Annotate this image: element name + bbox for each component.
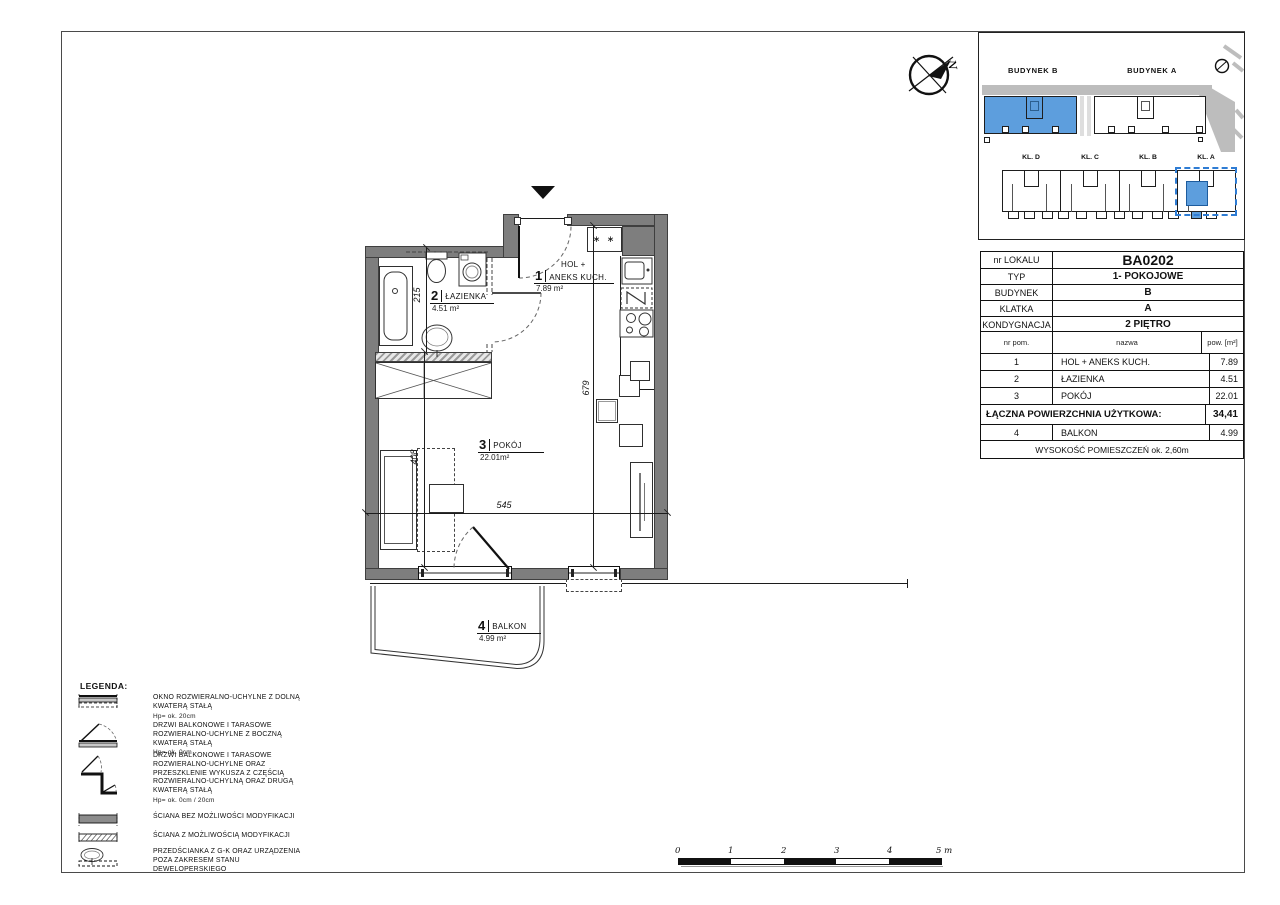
room-number: 1: [534, 270, 546, 282]
legend-note: Hp= ok. 20cm: [153, 713, 311, 721]
strip-unit-line: [1105, 184, 1106, 212]
site-detail: [1128, 126, 1135, 133]
stair-label-klc: KL. C: [1072, 154, 1108, 161]
window-symbol-icon: [78, 694, 118, 712]
legend-item-balcony-door: DRZWI BALKONOWE I TARASOWE ROZWIERALNO-U…: [78, 722, 313, 750]
room-number: 2: [430, 290, 442, 302]
fixed-wall-symbol-icon: [78, 813, 118, 826]
strip-unit-line: [1129, 184, 1130, 212]
room-row-name: ŁAZIENKA: [1053, 371, 1210, 387]
site-detail: [1108, 126, 1115, 133]
strip-divider: [1060, 170, 1061, 212]
unit-info-label: TYP: [981, 269, 1053, 284]
scale-tick-label: 1: [728, 846, 733, 856]
gk-partition-symbol-icon: [78, 848, 118, 868]
scale-segment: [679, 859, 731, 864]
room-area: 4.51 m²: [430, 304, 494, 313]
strip-unit-line: [1012, 184, 1013, 212]
room-area-table: nr pom. nazwa pow. [m²] 1 HOL + ANEKS KU…: [980, 331, 1244, 459]
strip-balcony: [1076, 211, 1087, 219]
room-label-pokoj: 3 POKÓJ 22.01m²: [478, 439, 544, 462]
strip-balcony: [1042, 211, 1053, 219]
floor-value: 2 PIĘTRO: [1053, 317, 1243, 332]
scale-segment: [889, 859, 941, 864]
site-detail: [1162, 126, 1169, 133]
legend-text: OKNO ROZWIERALNO-UCHYLNE Z DOLNĄ KWATERĄ…: [153, 694, 300, 710]
site-path: [1080, 96, 1084, 136]
dimension-line: [424, 352, 425, 568]
site-detail: [1022, 126, 1029, 133]
room-row-area: 7.89: [1210, 354, 1243, 370]
room-row-name: POKÓJ: [1053, 388, 1210, 404]
strip-balcony: [1058, 211, 1069, 219]
room-name: BALKON: [489, 623, 526, 631]
scale-tick-label: 2: [781, 846, 786, 856]
unit-info-label: nr LOKALU: [981, 252, 1053, 268]
balcony-door-symbol-icon: [78, 722, 118, 750]
strip-unit-line: [1163, 184, 1164, 212]
legend-text: PRZEDŚCIANKA Z G-K ORAZ URZĄDZENIA POZA …: [153, 848, 300, 873]
staircase-value: A: [1053, 301, 1243, 316]
legend-text: DRZWI BALKONOWE I TARASOWE ROZWIERALNO-U…: [153, 722, 282, 747]
unit-number-value: BA0202: [1053, 252, 1243, 268]
stair-a-highlight: [1175, 167, 1237, 216]
site-path: [1087, 96, 1091, 136]
unit-info-label: BUDYNEK: [981, 285, 1053, 300]
room-name: ANEKS KUCH.: [546, 274, 607, 282]
legend-item-modifiable-wall: ŚCIANA Z MOŻLIWOŚCIĄ MODYFIKACJI: [78, 832, 313, 844]
north-compass-icon: N: [909, 56, 959, 94]
strip-stair: [1141, 170, 1156, 187]
strip-divider: [1119, 170, 1120, 212]
scale-tick-label: 3: [834, 846, 839, 856]
scale-bar: [678, 858, 942, 865]
legend-item-window: OKNO ROZWIERALNO-UCHYLNE Z DOLNĄ KWATERĄ…: [78, 694, 313, 712]
room-row-num: 3: [981, 388, 1053, 404]
scale-segment: [784, 859, 836, 864]
column-header: pow. [m²]: [1202, 332, 1243, 353]
hob: [620, 310, 653, 337]
sheet: ∗ ∗: [0, 0, 1280, 905]
unit-info-table: nr LOKALU BA0202 TYP 1- POKOJOWE BUDYNEK…: [980, 251, 1244, 333]
site-detail: [1196, 126, 1203, 133]
room-label-lazienka: 2 ŁAZIENKA 4.51 m²: [430, 290, 494, 313]
bay-door-symbol-icon: [78, 752, 118, 798]
legend-text: DRZWI BALKONOWE I TARASOWE ROZWIERALNO-U…: [153, 752, 293, 794]
room-number: 3: [478, 439, 490, 451]
bathtub-basin: [384, 272, 407, 340]
strip-stair: [1083, 170, 1098, 187]
modifiable-wall-symbol-icon: [78, 832, 118, 844]
room-row-num: 4: [981, 425, 1053, 440]
site-detail: [984, 137, 990, 143]
site-building-b-stair-core: [1030, 101, 1039, 111]
room-row-area: 22.01: [1210, 388, 1243, 404]
column-header: nr pom.: [981, 332, 1053, 353]
legend-item-fixed-wall: ŚCIANA BEZ MOŻLIWOŚCI MODYFIKACJI: [78, 813, 313, 826]
room-label-balkon: 4 BALKON 4.99 m²: [477, 620, 541, 643]
strip-balcony: [1132, 211, 1143, 219]
building-value: B: [1053, 285, 1243, 300]
site-detail: [1052, 126, 1059, 133]
legend-text: ŚCIANA Z MOŻLIWOŚCIĄ MODYFIKACJI: [153, 832, 290, 839]
room-row-num: 1: [981, 354, 1053, 370]
legend-title: LEGENDA:: [80, 681, 128, 691]
svg-text:N: N: [945, 58, 960, 71]
kitchen-sink: [622, 258, 652, 284]
dimension-line: [426, 248, 427, 352]
legend-note: Hp= ok. 0cm / 20cm: [153, 797, 311, 805]
column-header: nazwa: [1053, 332, 1202, 353]
stair-label-klb: KL. B: [1130, 154, 1166, 161]
building-a-label: BUDYNEK A: [1106, 66, 1198, 75]
legend-item-bay-door: DRZWI BALKONOWE I TARASOWE ROZWIERALNO-U…: [78, 752, 313, 798]
dimension-label-215: 215: [412, 284, 422, 306]
scale-segment: [836, 859, 888, 864]
room-area: 22.01m²: [478, 453, 544, 462]
site-detail: [1198, 137, 1203, 142]
room-row-area: 4.51: [1210, 371, 1243, 387]
room-name: POKÓJ: [490, 442, 522, 450]
unit-info-label: KLATKA: [981, 301, 1053, 316]
dimension-label-679: 679: [581, 377, 591, 399]
strip-unit-line: [1046, 184, 1047, 212]
balcony-door: [454, 527, 509, 569]
legend-text: ŚCIANA BEZ MOŻLIWOŚCI MODYFIKACJI: [153, 813, 295, 820]
scale-end-label: 5 m: [936, 846, 952, 856]
strip-stair: [1024, 170, 1039, 187]
strip-balcony: [1152, 211, 1163, 219]
room-area: 4.99 m²: [477, 634, 541, 643]
scale-bar-shadow: [681, 866, 943, 867]
unit-type-value: 1- POKOJOWE: [1053, 269, 1243, 284]
unit-info-label: KONDYGNACJA: [981, 317, 1053, 332]
room-row-name: HOL + ANEKS KUCH.: [1053, 354, 1210, 370]
strip-balcony: [1096, 211, 1107, 219]
toilet: [426, 252, 447, 283]
strip-unit-line: [1071, 184, 1072, 212]
room-row-area: 4.99: [1210, 425, 1243, 440]
stair-label-kld: KL. D: [1013, 154, 1049, 161]
room-row-name: BALKON: [1053, 425, 1210, 440]
wardrobe-cross: [376, 362, 491, 399]
dimension-label-408: 408: [409, 446, 419, 468]
bathroom-door: [492, 293, 541, 342]
fridge: [621, 288, 652, 308]
site-building-a-stair-core: [1141, 101, 1150, 111]
stair-label-kla: KL. A: [1188, 154, 1224, 161]
scale-tick-label: 4: [887, 846, 892, 856]
strip-balcony: [1114, 211, 1125, 219]
strip-balcony: [1008, 211, 1019, 219]
building-b-label: BUDYNEK B: [990, 66, 1076, 75]
washing-machine: [459, 253, 486, 286]
site-road: [982, 85, 1212, 95]
dimension-line: [365, 513, 668, 514]
total-area-value: 34,41: [1206, 405, 1243, 424]
room-label-hol: HOL + 1 ANEKS KUCH. 7.89 m²: [534, 261, 614, 293]
dimension-label-545: 545: [490, 500, 518, 510]
entrance-arrow: [531, 186, 555, 199]
legend-item-gk-partition: PRZEDŚCIANKA Z G-K ORAZ URZĄDZENIA POZA …: [78, 848, 313, 868]
site-detail: [1002, 126, 1009, 133]
strip-balcony: [1024, 211, 1035, 219]
scale-segment: [731, 859, 783, 864]
room-row-num: 2: [981, 371, 1053, 387]
room-name-pre: HOL +: [534, 261, 614, 269]
room-name: ŁAZIENKA: [442, 293, 486, 301]
ceiling-height-note: WYSOKOŚĆ POMIESZCZEŃ ok. 2,60m: [981, 441, 1243, 458]
scale-tick-label: 0: [675, 846, 680, 856]
total-area-label: ŁĄCZNA POWIERZCHNIA UŻYTKOWA:: [981, 405, 1206, 424]
room-area: 7.89 m²: [534, 284, 614, 293]
room-number: 4: [477, 620, 489, 632]
